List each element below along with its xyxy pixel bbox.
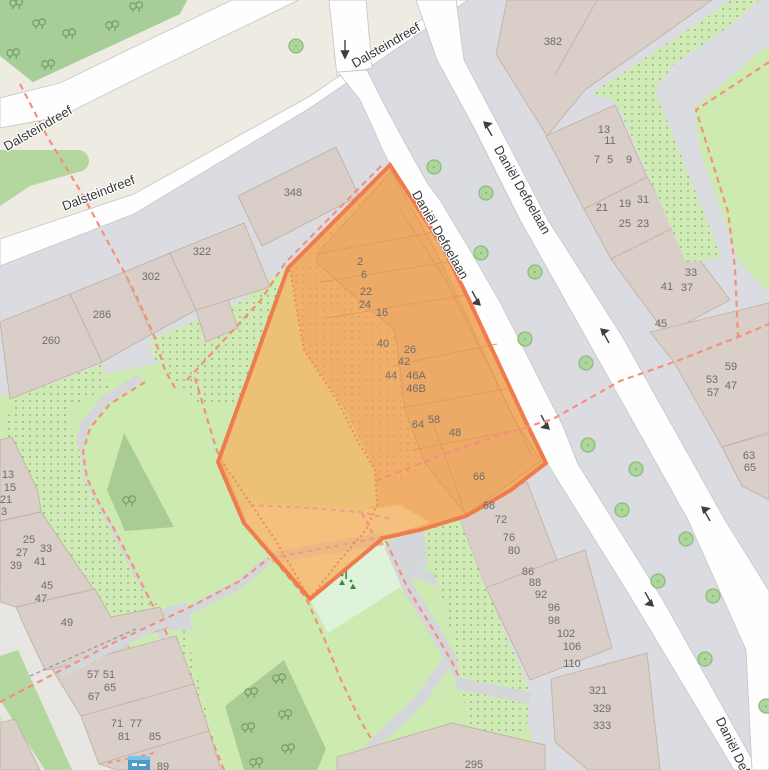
- svg-text:45: 45: [41, 580, 53, 592]
- svg-text:33: 33: [685, 267, 697, 279]
- svg-text:67: 67: [88, 691, 100, 703]
- svg-text:89: 89: [157, 761, 169, 770]
- svg-text:110: 110: [563, 658, 581, 670]
- svg-text:23: 23: [637, 218, 649, 230]
- svg-text:348: 348: [284, 187, 302, 199]
- svg-text:322: 322: [193, 246, 211, 258]
- svg-text:2: 2: [357, 256, 363, 268]
- svg-text:40: 40: [377, 338, 389, 350]
- svg-text:6: 6: [361, 269, 367, 281]
- svg-text:302: 302: [142, 271, 160, 283]
- svg-text:81: 81: [118, 731, 130, 743]
- svg-text:96: 96: [548, 602, 560, 614]
- svg-text:260: 260: [42, 335, 60, 347]
- svg-text:16: 16: [376, 307, 388, 319]
- svg-text:66: 66: [473, 471, 485, 483]
- svg-text:64: 64: [412, 419, 424, 431]
- svg-text:329: 329: [593, 703, 611, 715]
- svg-text:57: 57: [87, 669, 99, 681]
- svg-text:68: 68: [483, 500, 495, 512]
- svg-text:65: 65: [104, 682, 116, 694]
- svg-text:47: 47: [35, 593, 47, 605]
- svg-text:37: 37: [681, 282, 693, 294]
- svg-text:286: 286: [93, 309, 111, 321]
- svg-text:19: 19: [619, 198, 631, 210]
- svg-text:21: 21: [596, 202, 608, 214]
- svg-text:295: 295: [465, 759, 483, 770]
- svg-text:88: 88: [529, 577, 541, 589]
- svg-text:382: 382: [544, 36, 562, 48]
- svg-text:25: 25: [23, 534, 35, 546]
- svg-text:26: 26: [404, 344, 416, 356]
- svg-text:25: 25: [619, 218, 631, 230]
- svg-text:42: 42: [398, 356, 410, 368]
- svg-text:13: 13: [2, 469, 14, 481]
- svg-text:21: 21: [0, 494, 12, 506]
- svg-text:3: 3: [1, 506, 7, 518]
- svg-text:27: 27: [16, 547, 28, 559]
- svg-text:65: 65: [744, 462, 756, 474]
- svg-text:33: 33: [40, 543, 52, 555]
- svg-text:44: 44: [385, 370, 397, 382]
- svg-text:41: 41: [34, 556, 46, 568]
- svg-text:63: 63: [743, 450, 755, 462]
- svg-text:58: 58: [428, 414, 440, 426]
- svg-text:321: 321: [589, 685, 607, 697]
- svg-text:92: 92: [535, 589, 547, 601]
- svg-text:9: 9: [626, 154, 632, 166]
- svg-text:80: 80: [508, 545, 520, 557]
- svg-text:57: 57: [707, 387, 719, 399]
- svg-text:51: 51: [103, 669, 115, 681]
- svg-text:24: 24: [359, 299, 371, 311]
- svg-text:22: 22: [360, 286, 372, 298]
- svg-text:11: 11: [604, 135, 615, 147]
- svg-text:72: 72: [495, 514, 507, 526]
- svg-text:46A: 46A: [406, 370, 426, 382]
- svg-text:45: 45: [655, 318, 667, 330]
- svg-text:7: 7: [594, 154, 600, 166]
- svg-text:48: 48: [449, 427, 461, 439]
- svg-text:102: 102: [557, 628, 575, 640]
- svg-text:106: 106: [563, 641, 581, 653]
- svg-text:47: 47: [725, 380, 737, 392]
- svg-text:5: 5: [607, 154, 613, 166]
- svg-text:31: 31: [637, 194, 649, 206]
- svg-text:15: 15: [4, 482, 16, 494]
- svg-text:41: 41: [661, 281, 673, 293]
- svg-text:39: 39: [10, 560, 22, 572]
- svg-text:71: 71: [111, 718, 123, 730]
- svg-text:98: 98: [548, 615, 560, 627]
- svg-text:77: 77: [130, 718, 142, 730]
- svg-text:85: 85: [149, 731, 161, 743]
- svg-text:59: 59: [725, 361, 737, 373]
- svg-text:76: 76: [503, 532, 515, 544]
- svg-text:46B: 46B: [406, 383, 426, 395]
- svg-text:49: 49: [61, 617, 73, 629]
- svg-text:53: 53: [706, 374, 718, 386]
- svg-text:333: 333: [593, 720, 611, 732]
